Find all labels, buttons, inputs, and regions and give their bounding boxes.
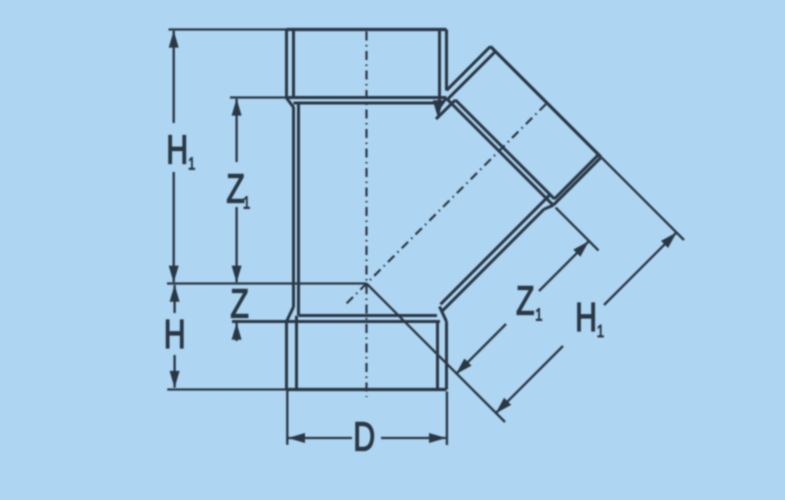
svg-text:H: H — [164, 310, 186, 357]
svg-text:H: H — [166, 126, 188, 173]
svg-text:Z: Z — [516, 277, 535, 324]
svg-text:H: H — [575, 294, 597, 341]
svg-text:1: 1 — [597, 322, 605, 341]
svg-text:1: 1 — [188, 155, 196, 174]
svg-text:1: 1 — [243, 194, 251, 213]
svg-text:1: 1 — [535, 306, 543, 325]
svg-text:D: D — [353, 413, 375, 460]
svg-text:Z: Z — [230, 280, 249, 327]
